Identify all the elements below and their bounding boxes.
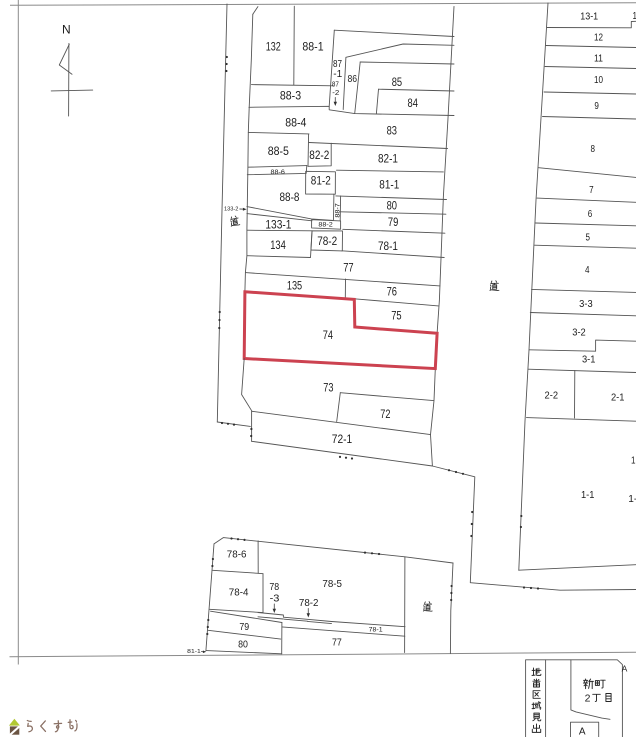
svg-text:88-3: 88-3	[280, 91, 301, 103]
svg-text:1: 1	[631, 456, 636, 467]
svg-text:132: 132	[266, 41, 281, 53]
svg-text:82-1: 82-1	[378, 154, 398, 166]
svg-text:80: 80	[387, 201, 397, 213]
svg-text:1-: 1-	[628, 494, 636, 505]
svg-text:79: 79	[388, 217, 398, 229]
svg-text:134: 134	[270, 240, 286, 252]
svg-text:84: 84	[408, 98, 419, 110]
svg-text:88-2: 88-2	[318, 221, 333, 228]
svg-text:5: 5	[586, 233, 591, 244]
svg-text:10: 10	[594, 75, 603, 86]
svg-text:88-1: 88-1	[302, 41, 323, 53]
svg-text:78-4: 78-4	[229, 587, 249, 599]
svg-text:88-4: 88-4	[285, 118, 307, 130]
svg-text:2-1: 2-1	[611, 393, 625, 404]
svg-text:6: 6	[588, 209, 593, 220]
svg-text:N: N	[62, 23, 71, 37]
svg-text:77: 77	[343, 263, 353, 275]
svg-text:4: 4	[585, 265, 590, 276]
svg-text:1: 1	[633, 11, 636, 22]
svg-text:78-1: 78-1	[378, 241, 398, 253]
svg-text:3-1: 3-1	[582, 355, 596, 366]
svg-text:86: 86	[348, 74, 358, 85]
svg-text:88-7: 88-7	[334, 203, 341, 218]
svg-text:9: 9	[594, 101, 599, 112]
svg-text:88-8: 88-8	[280, 192, 300, 204]
svg-text:3-2: 3-2	[572, 328, 586, 339]
svg-text:8: 8	[591, 144, 596, 155]
svg-text:-2: -2	[332, 88, 339, 97]
svg-text:78-2: 78-2	[317, 236, 337, 248]
svg-text:1-1: 1-1	[581, 490, 595, 501]
svg-text:78-6: 78-6	[227, 548, 247, 560]
svg-text:78-5: 78-5	[322, 578, 342, 590]
svg-text:82-2: 82-2	[309, 150, 329, 162]
svg-text:-1: -1	[333, 69, 342, 80]
svg-text:133-1: 133-1	[265, 219, 291, 231]
svg-text:72: 72	[380, 407, 390, 421]
svg-text:77: 77	[332, 636, 342, 648]
svg-text:81-2: 81-2	[311, 176, 331, 188]
svg-text:73: 73	[323, 380, 333, 394]
svg-text:133-2: 133-2	[224, 207, 239, 213]
svg-text:7: 7	[589, 185, 594, 196]
svg-text:78-1: 78-1	[369, 627, 384, 634]
svg-text:11: 11	[594, 53, 603, 64]
svg-text:79: 79	[239, 621, 249, 633]
svg-text:3-3: 3-3	[579, 299, 593, 310]
svg-text:78: 78	[269, 581, 279, 593]
svg-text:12: 12	[594, 33, 603, 44]
svg-text:13-1: 13-1	[580, 12, 598, 23]
svg-text:81-1: 81-1	[187, 649, 201, 655]
svg-text:2: 2	[585, 693, 591, 705]
svg-text:78-2: 78-2	[299, 597, 319, 609]
svg-text:72-1: 72-1	[332, 432, 353, 446]
svg-text:135: 135	[287, 278, 303, 292]
svg-text:85: 85	[392, 77, 402, 89]
svg-text:76: 76	[387, 285, 398, 299]
svg-text:A: A	[622, 664, 628, 674]
svg-text:88-5: 88-5	[268, 146, 289, 158]
svg-text:-3: -3	[270, 593, 280, 605]
svg-text:A: A	[579, 727, 586, 737]
svg-text:80: 80	[238, 638, 248, 650]
svg-text:2-2: 2-2	[545, 391, 559, 402]
svg-text:83: 83	[387, 125, 397, 137]
svg-text:81-1: 81-1	[379, 180, 399, 192]
svg-text:75: 75	[391, 309, 402, 323]
svg-text:88-6: 88-6	[271, 169, 286, 176]
svg-text:74: 74	[323, 328, 333, 342]
